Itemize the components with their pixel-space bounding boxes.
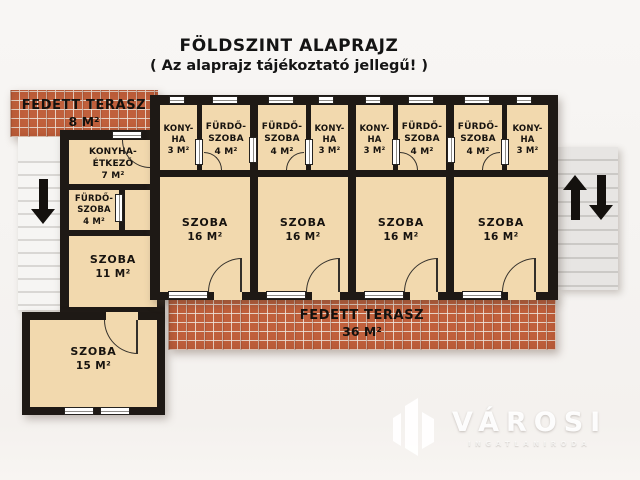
main-block: KONY- HA 3 M² FÜRDŐ- SZOBA 4 M² SZOBA 16… xyxy=(150,95,558,300)
unit3-kitchen: KONY- HA 3 M² xyxy=(356,105,393,170)
arrow-shaft xyxy=(571,190,580,220)
room-label: KONY- xyxy=(360,124,390,135)
room-label: HA xyxy=(171,135,185,146)
room-label: FÜRDŐ- xyxy=(262,121,302,133)
room-label: FÜRDŐ- xyxy=(206,121,246,133)
stairs-right xyxy=(558,147,618,290)
door-opening xyxy=(214,292,242,300)
up-arrow-icon xyxy=(563,175,587,220)
door-opening xyxy=(508,292,536,300)
window xyxy=(268,96,294,104)
room-label: FÜRDŐ- xyxy=(458,121,498,133)
room-area: 3 M² xyxy=(168,146,190,157)
window xyxy=(115,194,123,222)
door-leaf xyxy=(240,258,242,292)
door-opening xyxy=(106,312,138,320)
terrace-36-area: 36 M² xyxy=(342,324,382,339)
room-15-block: SZOBA 15 M² xyxy=(22,312,165,415)
terrace-36: FEDETT TERASZ 36 M² xyxy=(168,297,556,350)
window xyxy=(266,291,306,299)
door-opening xyxy=(312,292,340,300)
room-label: HA xyxy=(520,135,534,146)
room-label: HA xyxy=(367,135,381,146)
terrace-8-area: 8 M² xyxy=(69,114,100,129)
plan-title-line2: ( Az alaprajz tájékoztató jellegű! ) xyxy=(64,58,514,74)
room-area: 11 M² xyxy=(95,268,130,280)
window xyxy=(365,96,381,104)
room-area: 16 M² xyxy=(285,231,320,243)
room-label: KONY- xyxy=(315,124,345,135)
room-label: SZOBA xyxy=(182,214,228,231)
arrow-head xyxy=(589,205,613,220)
arrow-head xyxy=(563,175,587,190)
room-area: 4 M² xyxy=(466,146,489,158)
room-label: FÜRDŐ- xyxy=(75,194,113,205)
window xyxy=(516,96,532,104)
room-area: 15 M² xyxy=(76,360,111,372)
window xyxy=(112,131,142,139)
arrow-shaft xyxy=(39,179,48,209)
building-logo-icon xyxy=(392,398,438,456)
room-label: HA xyxy=(322,135,336,146)
window xyxy=(64,407,94,415)
room-label: SZOBA xyxy=(70,343,116,360)
window xyxy=(212,96,238,104)
door xyxy=(501,139,509,165)
down-arrow-icon xyxy=(31,179,55,224)
arrow-head xyxy=(31,209,55,224)
watermark-subtitle: INGATLANIRODA xyxy=(468,440,591,448)
plan-title-line1: FÖLDSZINT ALAPRAJZ xyxy=(64,36,514,56)
terrace-8-label: FEDETT TERASZ xyxy=(22,98,146,113)
watermark-brand: VÁROSI xyxy=(452,407,607,438)
room-area: 3 M² xyxy=(319,146,341,157)
window xyxy=(169,96,185,104)
unit2-kitchen: KONY- HA 3 M² xyxy=(311,105,348,170)
watermark: VÁROSI INGATLANIRODA xyxy=(392,398,607,456)
door xyxy=(392,139,400,165)
room-area: 3 M² xyxy=(364,146,386,157)
room-label: SZOBA xyxy=(478,214,524,231)
room-label: SZOBA xyxy=(90,251,136,268)
room-area: 7 M² xyxy=(101,170,124,182)
watermark-text: VÁROSI INGATLANIRODA xyxy=(452,407,607,448)
room-label: SZOBA xyxy=(77,205,111,216)
room-label: SZOBA xyxy=(460,133,495,145)
unit4-kitchen: KONY- HA 3 M² xyxy=(507,105,548,170)
room-label: KONY- xyxy=(164,124,194,135)
door-leaf xyxy=(436,258,438,292)
door xyxy=(195,139,203,165)
door-leaf xyxy=(534,258,536,292)
room-label: SZOBA xyxy=(378,214,424,231)
door-leaf xyxy=(136,320,138,354)
room-area: 4 M² xyxy=(410,146,433,158)
room-area: 16 M² xyxy=(187,231,222,243)
plan-title: FÖLDSZINT ALAPRAJZ ( Az alaprajz tájékoz… xyxy=(64,36,514,74)
room-area: 4 M² xyxy=(270,146,293,158)
room-label: FÜRDŐ- xyxy=(402,121,442,133)
window xyxy=(464,96,490,104)
window xyxy=(364,291,404,299)
room-label: SZOBA xyxy=(280,214,326,231)
window xyxy=(100,407,130,415)
room-szoba-11: SZOBA 11 M² xyxy=(69,236,157,307)
floor-plan-canvas: FÖLDSZINT ALAPRAJZ ( Az alaprajz tájékoz… xyxy=(0,0,640,480)
window xyxy=(447,137,455,163)
room-label: SZOBA xyxy=(264,133,299,145)
down-arrow-icon xyxy=(589,175,613,220)
room-area: 4 M² xyxy=(83,217,105,228)
room-area: 3 M² xyxy=(517,146,539,157)
room-area: 16 M² xyxy=(483,231,518,243)
unit1-kitchen: KONY- HA 3 M² xyxy=(160,105,197,170)
room-area: 4 M² xyxy=(214,146,237,158)
window xyxy=(249,137,257,163)
room-label: SZOBA xyxy=(208,133,243,145)
room-label: KONY- xyxy=(513,124,543,135)
window xyxy=(318,96,334,104)
window xyxy=(168,291,208,299)
door-leaf xyxy=(338,258,340,292)
door xyxy=(305,139,313,165)
window xyxy=(408,96,434,104)
door-opening xyxy=(410,292,438,300)
room-area: 16 M² xyxy=(383,231,418,243)
room-bathroom-left-wing: FÜRDŐ- SZOBA 4 M² xyxy=(69,190,119,230)
room-label: SZOBA xyxy=(404,133,439,145)
window xyxy=(462,291,502,299)
arrow-shaft xyxy=(597,175,606,205)
terrace-36-label: FEDETT TERASZ xyxy=(300,308,424,323)
